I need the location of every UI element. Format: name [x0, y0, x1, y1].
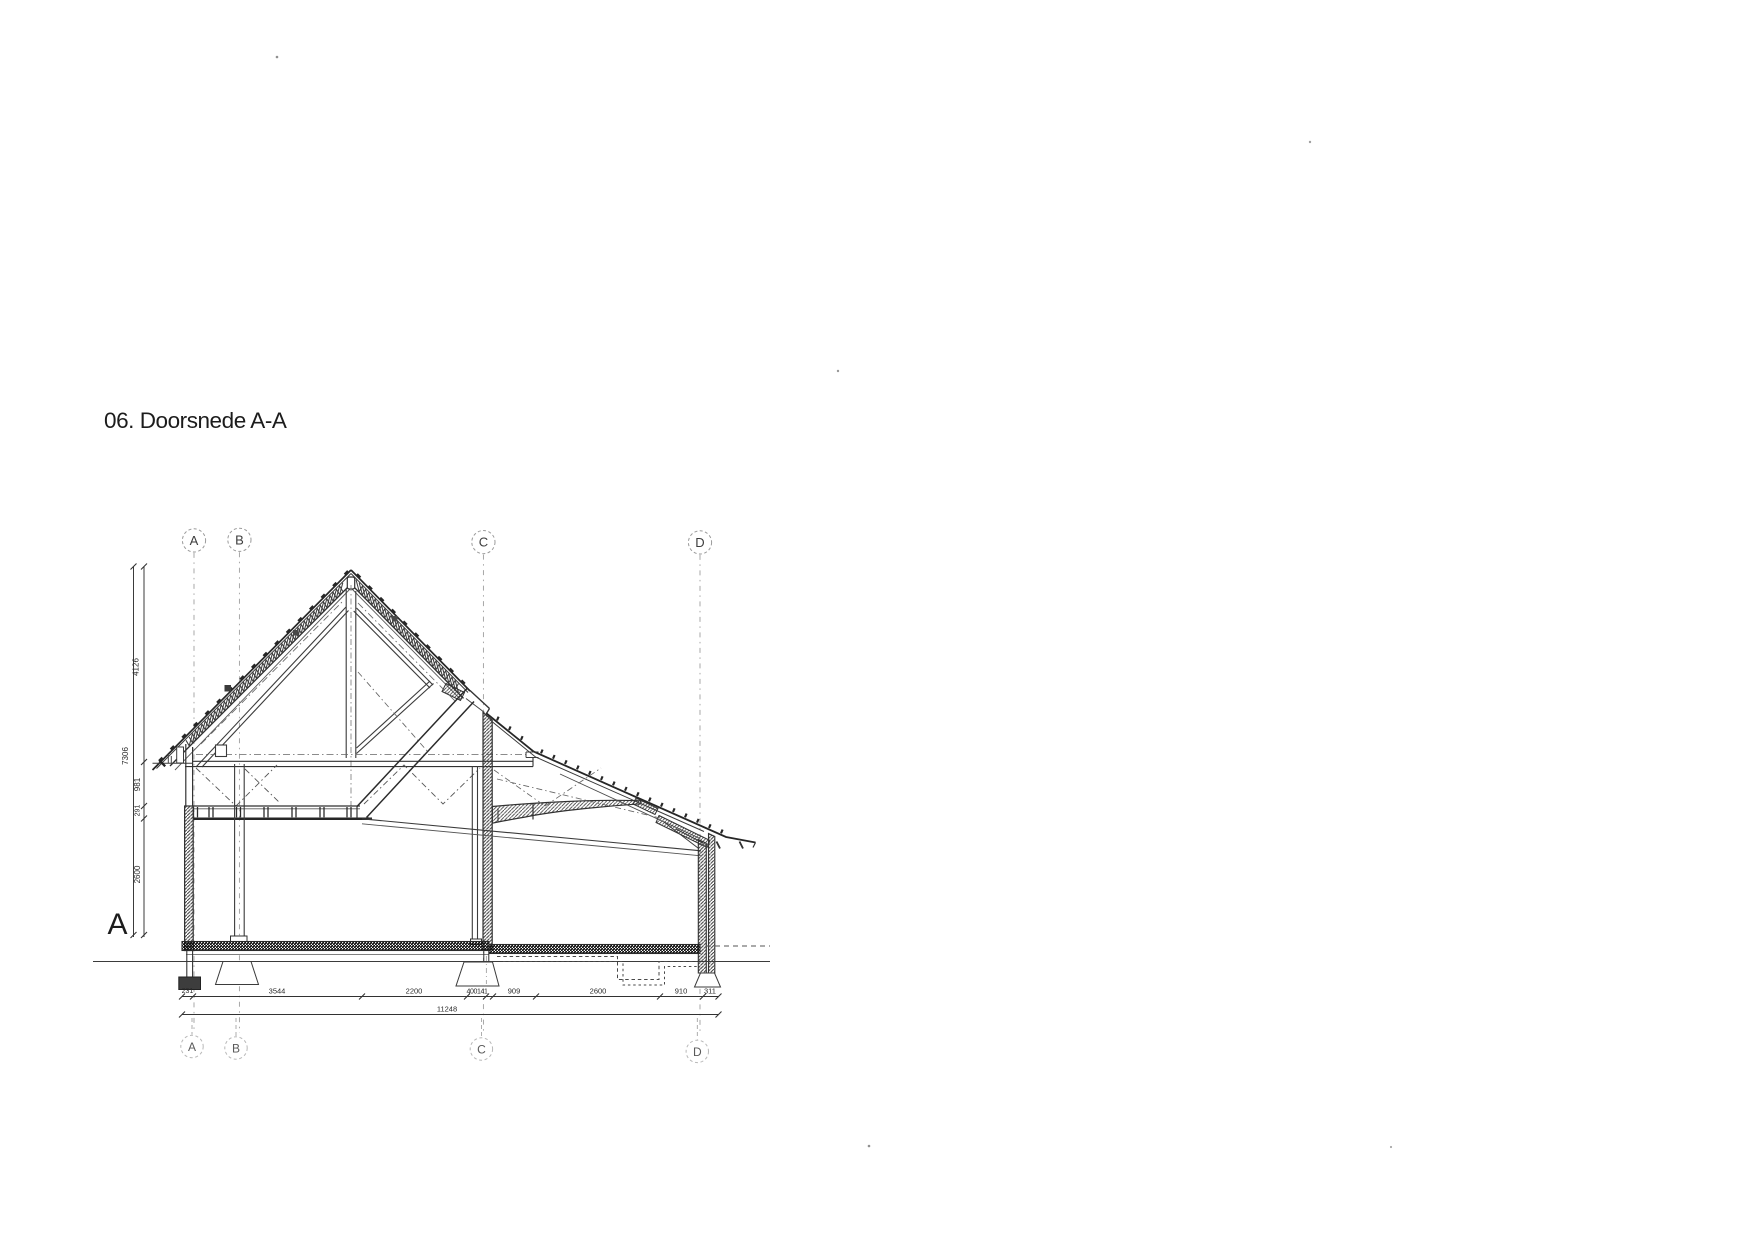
- svg-text:291: 291: [135, 805, 142, 817]
- svg-text:4126: 4126: [132, 658, 141, 676]
- svg-text:A: A: [108, 908, 128, 941]
- svg-text:D: D: [695, 535, 704, 550]
- svg-text:A: A: [190, 533, 199, 548]
- svg-text:C: C: [477, 1042, 486, 1056]
- svg-text:C: C: [479, 535, 488, 550]
- svg-text:A: A: [188, 1040, 196, 1054]
- svg-text:3544: 3544: [269, 987, 286, 996]
- svg-text:B: B: [232, 1041, 240, 1055]
- svg-text:2600: 2600: [590, 987, 607, 996]
- svg-text:11248: 11248: [437, 1005, 457, 1014]
- svg-text:B: B: [235, 532, 244, 547]
- svg-text:981: 981: [133, 777, 142, 791]
- svg-text:D: D: [693, 1045, 702, 1059]
- svg-text:400141: 400141: [467, 989, 488, 996]
- svg-text:311: 311: [704, 987, 716, 996]
- svg-text:7306: 7306: [121, 747, 130, 765]
- svg-text:2200: 2200: [406, 987, 423, 996]
- svg-text:909: 909: [508, 987, 521, 996]
- svg-text:2600: 2600: [133, 865, 142, 883]
- svg-text:231: 231: [182, 988, 194, 995]
- svg-text:910: 910: [675, 987, 688, 996]
- svg-text:06. Doorsnede A-A: 06. Doorsnede A-A: [104, 408, 287, 433]
